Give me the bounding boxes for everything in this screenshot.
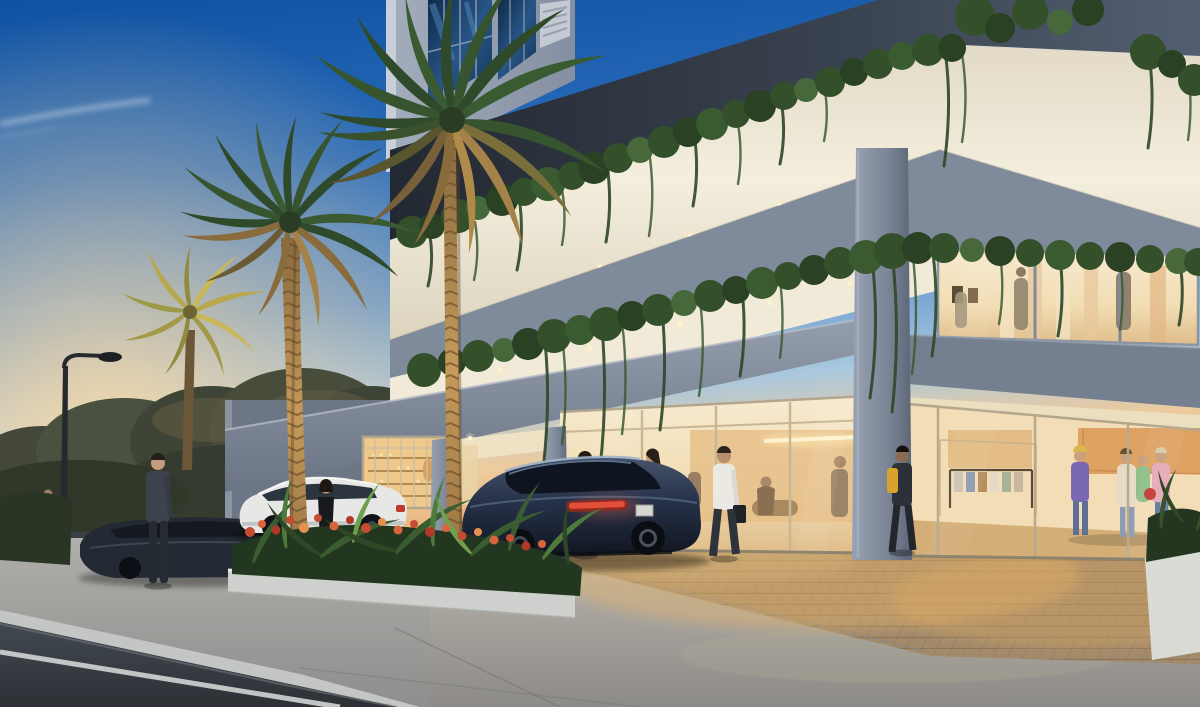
lobby-pendant-light: [760, 433, 864, 447]
suv-taillight: [396, 505, 405, 512]
lamp-head-icon: [98, 352, 122, 362]
yellow-backpack: [887, 468, 898, 493]
license-plate: [636, 505, 653, 516]
scene: [0, 0, 1200, 707]
rendering-stage: [0, 0, 1200, 707]
left-shrub: [0, 492, 72, 565]
